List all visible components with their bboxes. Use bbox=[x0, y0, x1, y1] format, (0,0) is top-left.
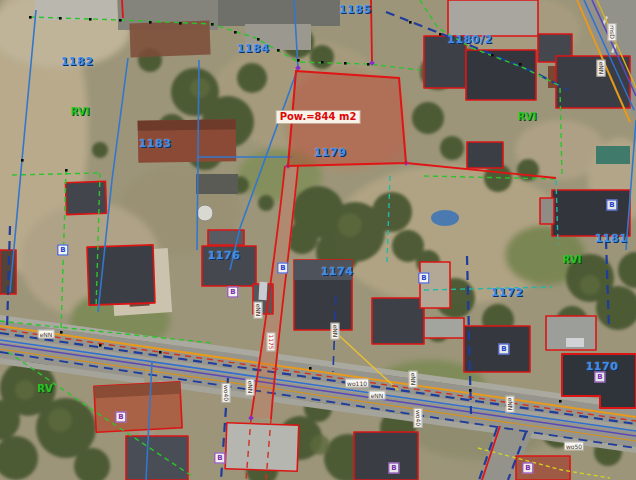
aerial-map-canvas[interactable] bbox=[0, 0, 636, 480]
map-viewport[interactable]: Pow.=844 m2 11821183118411851180/2117911… bbox=[0, 0, 636, 480]
selected-parcel[interactable] bbox=[288, 71, 406, 166]
